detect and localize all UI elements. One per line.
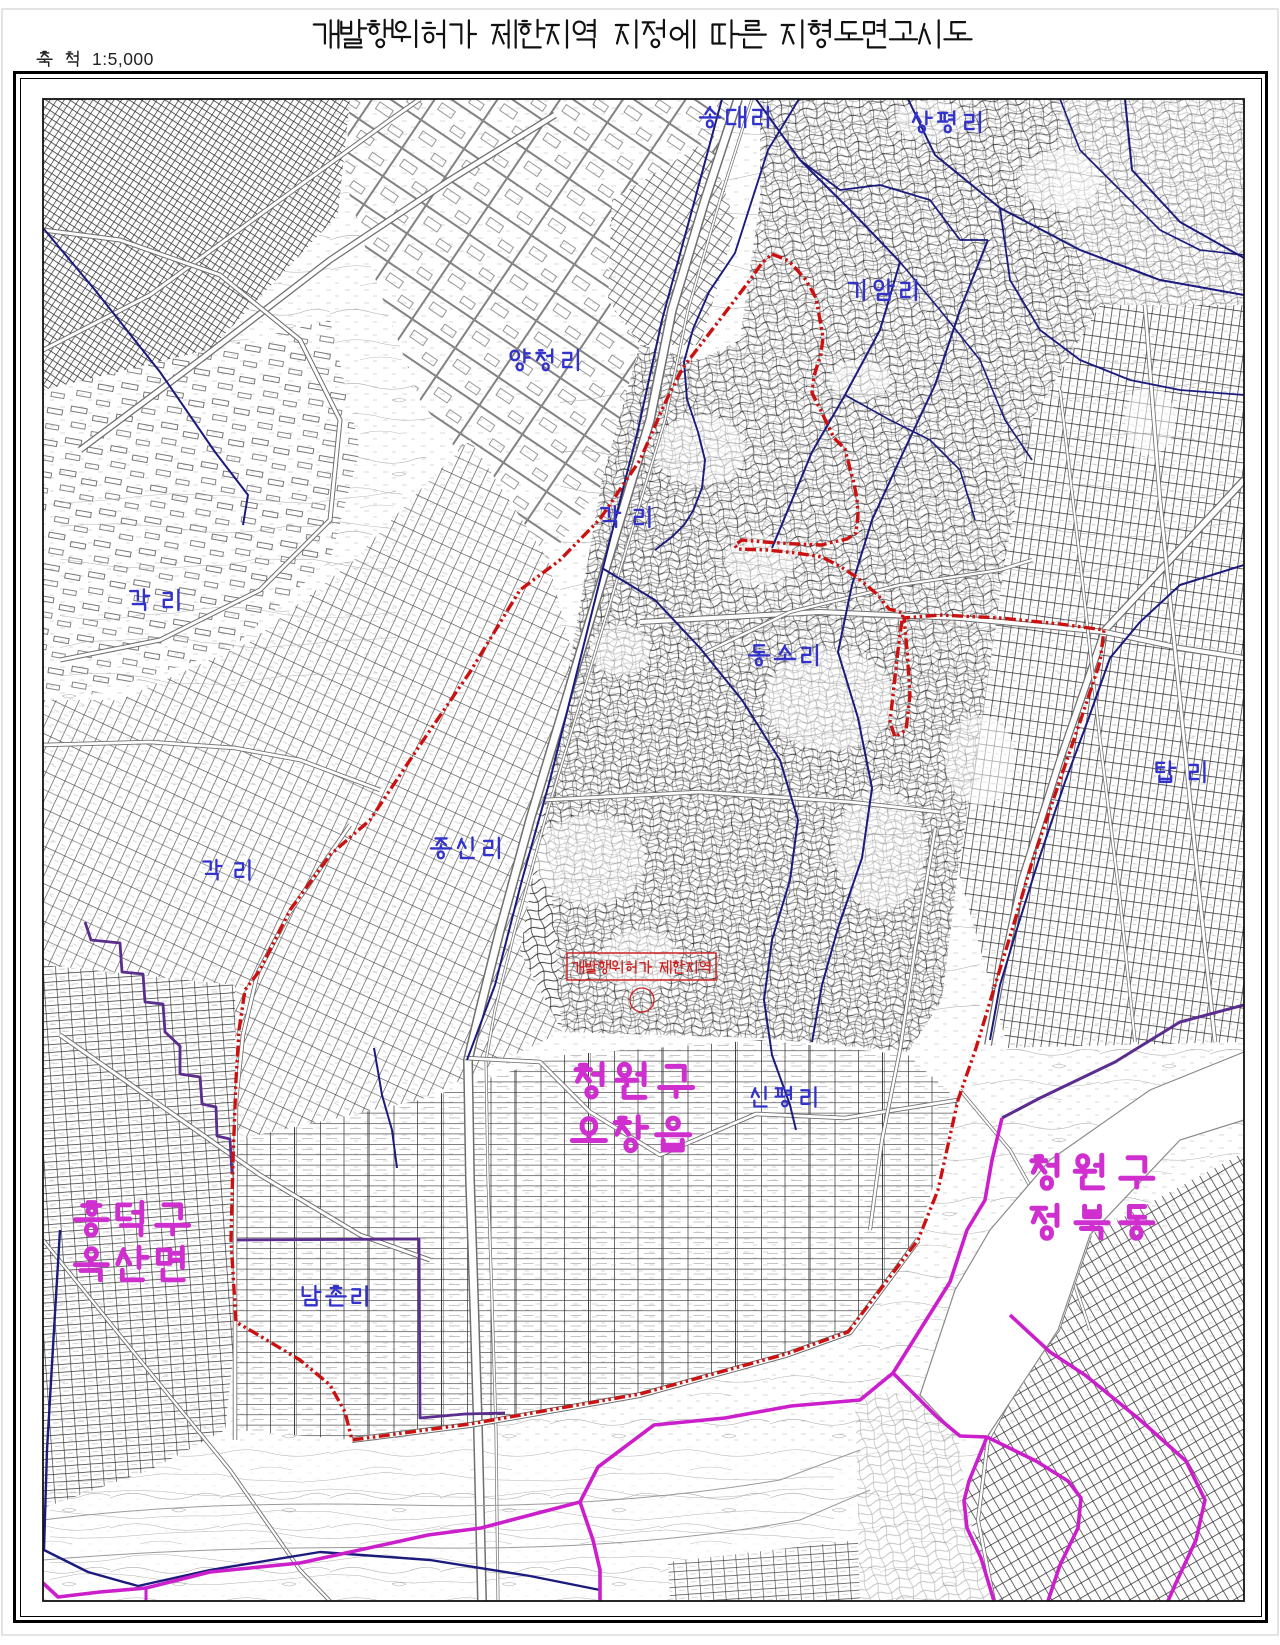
svg-text:1:5,000: 1:5,000: [92, 49, 154, 69]
